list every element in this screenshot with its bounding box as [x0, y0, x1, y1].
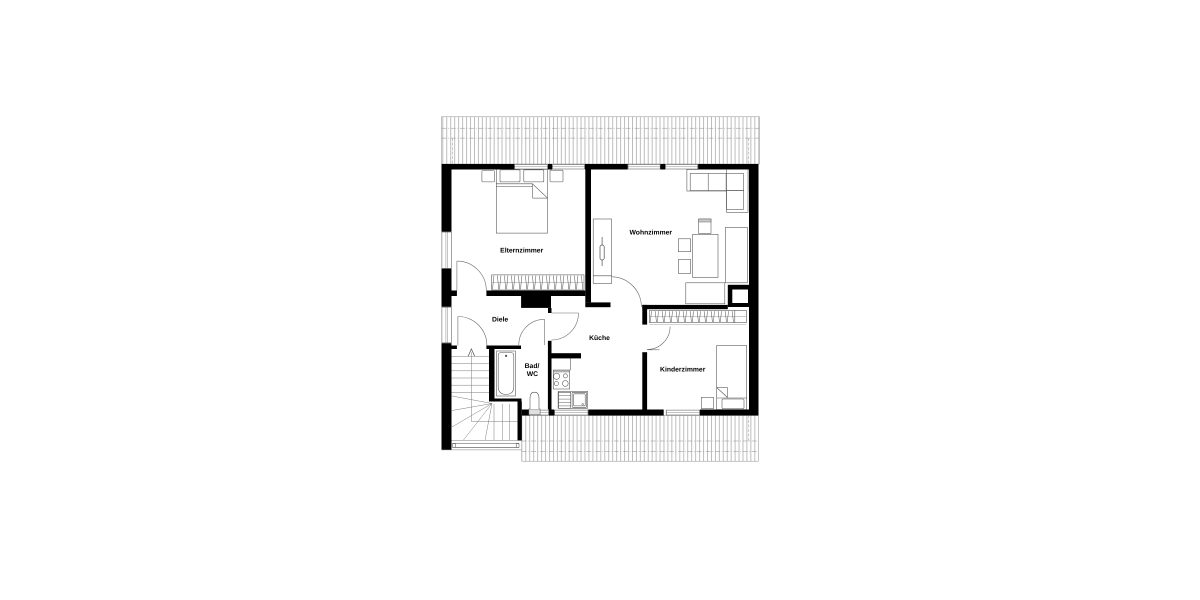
svg-text:Kinderzimmer: Kinderzimmer — [660, 367, 706, 374]
svg-text:Diele: Diele — [492, 317, 508, 324]
svg-text:Bad/: Bad/ — [525, 363, 540, 370]
svg-text:Elternzimmer: Elternzimmer — [500, 247, 543, 254]
svg-text:Wohnzimmer: Wohnzimmer — [630, 230, 673, 237]
svg-text:Küche: Küche — [589, 335, 610, 342]
svg-text:WC: WC — [527, 371, 538, 378]
